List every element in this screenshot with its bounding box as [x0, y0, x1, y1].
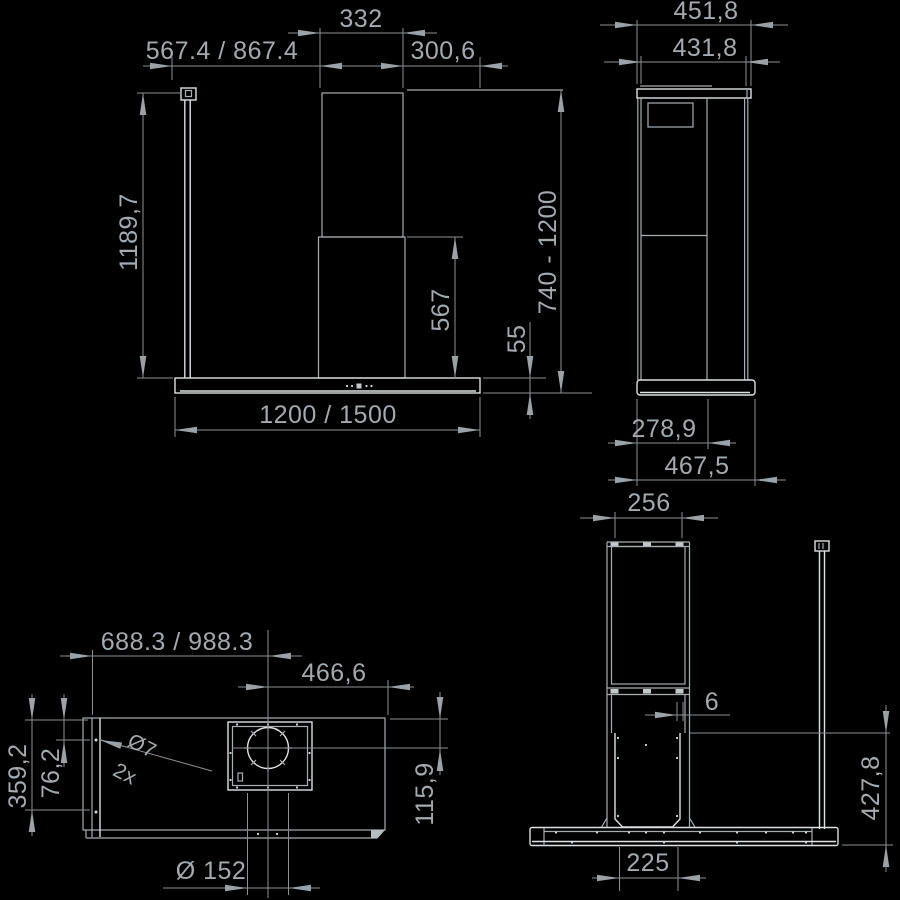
duct-plate — [228, 722, 312, 790]
dim-label-466-6: 466,6 — [301, 659, 366, 687]
dim-front-hole-depth: 76,2 — [37, 694, 90, 798]
dim-lower-chimney: 567 — [407, 237, 463, 378]
dim-rear-chimney-width: 256 — [580, 489, 718, 538]
dim-label-332: 332 — [339, 5, 382, 33]
dim-height-range: 740 - 1200 — [483, 90, 592, 393]
dim-label-427-8: 427,8 — [857, 755, 885, 820]
dim-label-567-867: 567.4 / 867.4 — [146, 37, 298, 65]
dim-label-431-8: 431,8 — [672, 34, 737, 62]
dim-label-256: 256 — [627, 489, 670, 517]
pole-top-bracket — [181, 88, 196, 100]
dim-label-225: 225 — [626, 849, 669, 877]
mounting-panel — [615, 733, 680, 827]
dim-body-depth: 431,8 — [604, 34, 780, 86]
dim-pole-height: 1189,7 — [115, 93, 182, 378]
dim-hood-width: 1200 / 1500 — [175, 397, 480, 437]
control-display — [357, 384, 362, 389]
drawing-canvas: 332 567.4 / 867.4 300,6 1189,7 — [0, 0, 900, 900]
front-edge-corner — [371, 830, 385, 839]
rod-top-bracket — [815, 541, 829, 551]
dim-label-688-988: 688.3 / 988.3 — [101, 628, 253, 656]
dim-bracket-width: 225 — [592, 847, 706, 891]
dim-label-1200-1500: 1200 / 1500 — [259, 401, 397, 429]
top-cap — [637, 89, 751, 98]
dim-label-76-2: 76,2 — [37, 748, 65, 799]
callout-label-2x: 2x — [109, 759, 140, 790]
vent-grille — [648, 103, 693, 127]
dim-label-451-8: 451,8 — [673, 0, 738, 25]
dim-duct-dia: Ø 152 — [163, 793, 320, 895]
side-geometry — [637, 86, 755, 395]
hole-callout: Ø7 2x — [100, 729, 212, 789]
side-view: 451,8 431,8 278,9 467,5 — [600, 0, 788, 486]
dim-label-55: 55 — [503, 325, 531, 354]
dim-label-359-2: 359,2 — [4, 743, 32, 808]
mounting-panel-holes — [618, 738, 677, 816]
plan-geometry — [83, 630, 448, 898]
front-view: 332 567.4 / 867.4 300,6 1189,7 — [115, 5, 592, 437]
dim-label-1189-7: 1189,7 — [115, 193, 143, 271]
dim-duct-front-depth: 115,9 — [390, 692, 448, 826]
rear-view: 256 6 427,8 225 — [530, 489, 893, 891]
pole-top-screw — [186, 91, 192, 97]
dim-duct-offset-right: 466,6 — [238, 659, 414, 715]
dim-duct-offset-left: 688.3 / 988.3 — [60, 628, 302, 715]
dim-label-467-5: 467,5 — [664, 452, 729, 480]
dim-panel-gap: 6 — [645, 688, 730, 721]
arrow — [100, 740, 126, 747]
dim-label-300-6: 300,6 — [410, 37, 475, 65]
plate-mark — [238, 773, 243, 781]
dim-label-6: 6 — [705, 688, 719, 716]
dim-body-height: 55 — [483, 322, 546, 419]
dim-ceiling-offset: 567.4 / 867.4 300,6 — [143, 37, 508, 88]
plan-view: 688.3 / 988.3 466,6 359,2 76,2 — [4, 628, 448, 898]
dim-mount-height: 427,8 — [690, 705, 893, 872]
dim-label-115-9: 115,9 — [411, 762, 439, 825]
lower-chimney — [319, 237, 406, 378]
upper-chimney-panel — [612, 547, 686, 685]
dim-label-dia152: Ø 152 — [176, 857, 247, 885]
upper-chimney — [322, 93, 403, 237]
dim-label-278-9: 278,9 — [631, 415, 696, 443]
hood-dimension-drawing: 332 567.4 / 867.4 300,6 1189,7 — [0, 0, 900, 900]
callout-label-dia7: Ø7 — [124, 729, 160, 763]
dim-label-567: 567 — [427, 288, 455, 331]
dim-label-740-1200: 740 - 1200 — [534, 190, 562, 315]
rear-geometry — [530, 541, 838, 846]
hood-body-rear — [530, 828, 838, 846]
